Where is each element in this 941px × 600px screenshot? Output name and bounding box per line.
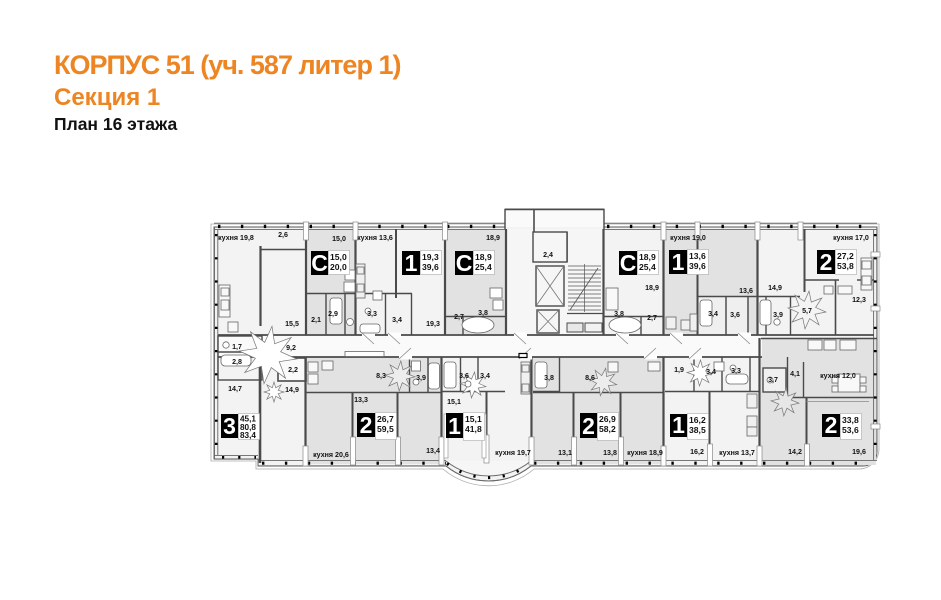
svg-text:38,5: 38,5	[689, 425, 706, 435]
svg-text:2: 2	[582, 413, 595, 439]
svg-text:1: 1	[672, 412, 685, 438]
svg-text:15,1: 15,1	[465, 414, 482, 424]
svg-text:13,3: 13,3	[354, 396, 368, 404]
svg-text:кухня 19,7: кухня 19,7	[495, 449, 531, 457]
svg-text:13,6: 13,6	[739, 287, 753, 295]
svg-text:кухня 18,9: кухня 18,9	[627, 449, 663, 457]
svg-text:41,8: 41,8	[465, 424, 482, 434]
svg-text:2,1: 2,1	[311, 316, 321, 324]
svg-text:25,4: 25,4	[475, 262, 492, 272]
svg-text:кухня 19,8: кухня 19,8	[218, 234, 254, 242]
svg-text:С: С	[620, 250, 637, 276]
svg-text:4,1: 4,1	[790, 370, 800, 378]
svg-text:18,9: 18,9	[639, 252, 656, 262]
svg-text:3,6: 3,6	[730, 311, 740, 319]
svg-text:27,2: 27,2	[837, 251, 854, 261]
svg-text:39,6: 39,6	[422, 262, 439, 272]
svg-text:1,7: 1,7	[232, 343, 242, 351]
svg-text:20,0: 20,0	[330, 262, 347, 272]
svg-text:Секция 1: Секция 1	[54, 84, 160, 111]
svg-text:9,2: 9,2	[286, 344, 296, 352]
svg-text:25,4: 25,4	[639, 262, 656, 272]
svg-text:2,8: 2,8	[232, 358, 242, 366]
svg-text:18,9: 18,9	[486, 234, 500, 242]
svg-text:53,6: 53,6	[842, 425, 859, 435]
svg-text:33,8: 33,8	[842, 415, 859, 425]
svg-text:3,8: 3,8	[544, 374, 554, 382]
svg-text:3,9: 3,9	[416, 374, 426, 382]
svg-text:кухня 17,0: кухня 17,0	[833, 234, 869, 242]
svg-text:3: 3	[223, 413, 236, 439]
svg-text:2,7: 2,7	[647, 314, 657, 322]
svg-text:15,0: 15,0	[330, 252, 347, 262]
svg-text:14,7: 14,7	[228, 385, 242, 393]
svg-text:кухня 12,0: кухня 12,0	[820, 372, 856, 380]
svg-text:кухня 19,0: кухня 19,0	[670, 234, 706, 242]
svg-text:15,5: 15,5	[285, 320, 299, 328]
svg-text:С: С	[456, 250, 473, 276]
svg-text:2: 2	[825, 412, 838, 438]
svg-text:3,4: 3,4	[392, 316, 402, 324]
svg-text:13,6: 13,6	[689, 251, 706, 261]
svg-text:2,6: 2,6	[278, 231, 288, 239]
svg-text:12,3: 12,3	[852, 296, 866, 304]
svg-text:2,4: 2,4	[543, 251, 553, 259]
svg-text:кухня 13,6: кухня 13,6	[357, 234, 393, 242]
svg-text:19,6: 19,6	[852, 448, 866, 456]
svg-text:3,9: 3,9	[773, 311, 783, 319]
svg-text:2,2: 2,2	[288, 366, 298, 374]
svg-text:14,2: 14,2	[788, 448, 802, 456]
svg-text:3,4: 3,4	[480, 372, 490, 380]
svg-text:39,6: 39,6	[689, 261, 706, 271]
svg-text:5,7: 5,7	[802, 307, 812, 315]
svg-text:3,3: 3,3	[367, 310, 377, 318]
svg-text:2,7: 2,7	[454, 313, 464, 321]
svg-text:кухня 13,7: кухня 13,7	[719, 449, 755, 457]
svg-text:кухня 20,6: кухня 20,6	[313, 451, 349, 459]
svg-text:С: С	[311, 250, 328, 276]
svg-text:3,8: 3,8	[614, 310, 624, 318]
svg-text:8,6: 8,6	[585, 374, 595, 382]
svg-text:83,4: 83,4	[240, 431, 256, 440]
svg-text:1: 1	[672, 249, 685, 275]
svg-text:18,9: 18,9	[645, 284, 659, 292]
svg-text:2: 2	[820, 249, 833, 275]
svg-text:53,8: 53,8	[837, 261, 854, 271]
svg-text:3,6: 3,6	[459, 372, 469, 380]
svg-text:3,3: 3,3	[731, 367, 741, 375]
svg-text:15,0: 15,0	[332, 235, 346, 243]
svg-text:19,3: 19,3	[426, 320, 440, 328]
svg-text:16,2: 16,2	[689, 415, 706, 425]
svg-text:3,4: 3,4	[706, 368, 716, 376]
svg-text:13,1: 13,1	[558, 449, 572, 457]
svg-text:26,7: 26,7	[377, 414, 394, 424]
svg-text:2: 2	[360, 412, 373, 438]
svg-text:13,4: 13,4	[426, 447, 440, 455]
svg-text:1: 1	[448, 413, 461, 439]
svg-text:8,3: 8,3	[376, 372, 386, 380]
svg-text:14,9: 14,9	[285, 386, 299, 394]
svg-text:13,8: 13,8	[603, 449, 617, 457]
svg-text:3,7: 3,7	[768, 376, 778, 384]
svg-text:19,3: 19,3	[422, 252, 439, 262]
svg-text:18,9: 18,9	[475, 252, 492, 262]
svg-text:2,9: 2,9	[328, 310, 338, 318]
svg-text:14,9: 14,9	[768, 284, 782, 292]
svg-text:59,5: 59,5	[377, 424, 394, 434]
svg-text:15,1: 15,1	[447, 398, 461, 406]
svg-text:1,9: 1,9	[674, 366, 684, 374]
svg-text:3,8: 3,8	[478, 309, 488, 317]
svg-text:16,2: 16,2	[690, 448, 704, 456]
svg-text:3,4: 3,4	[708, 310, 718, 318]
svg-text:КОРПУС 51 (уч. 587 литер 1): КОРПУС 51 (уч. 587 литер 1)	[54, 50, 400, 80]
svg-text:1: 1	[405, 250, 418, 276]
svg-text:26,9: 26,9	[599, 414, 616, 424]
svg-text:58,2: 58,2	[599, 424, 616, 434]
svg-text:План 16 этажа: План 16 этажа	[54, 114, 178, 134]
